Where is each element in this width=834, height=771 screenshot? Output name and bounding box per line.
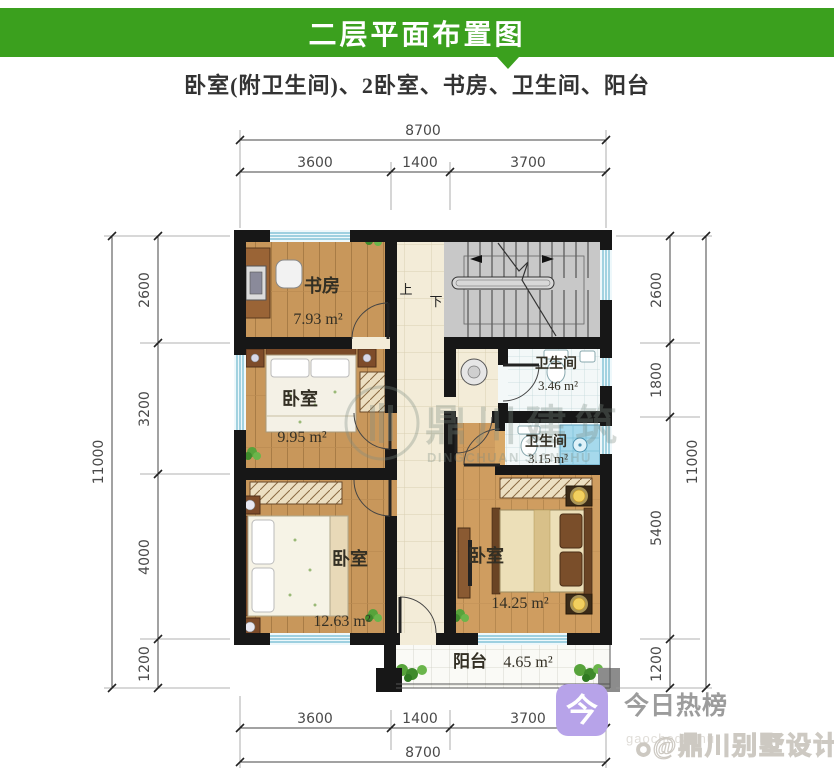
room-label-bedroom-left: 卧室 bbox=[332, 548, 368, 569]
dim-bottom-seg-3: 3700 bbox=[510, 711, 546, 727]
dim-left-seg-2: 3200 bbox=[137, 391, 153, 427]
room-area-balcony: 4.65 m² bbox=[503, 654, 552, 671]
bedroom-left-wardrobe bbox=[250, 482, 342, 504]
window-bedroom-mid bbox=[234, 355, 246, 430]
author-watermark-text: @鼎川别墅设计 bbox=[653, 733, 834, 760]
dim-left-seg-4: 1200 bbox=[137, 646, 153, 682]
dim-left-overall: 11000 bbox=[91, 440, 107, 485]
room-area-bedroom-right: 14.25 m² bbox=[491, 595, 548, 612]
stairs-down-label: 下 bbox=[429, 294, 442, 309]
jinri-rebang-logo-icon: 今 bbox=[556, 684, 608, 736]
window-bath-top bbox=[600, 358, 612, 386]
window-bedroom-right bbox=[478, 633, 567, 645]
room-area-study: 7.93 m² bbox=[293, 311, 342, 328]
room-area-bath-top: 3.46 m² bbox=[538, 378, 578, 393]
dim-right-seg-3: 5400 bbox=[649, 510, 665, 546]
window-stairs bbox=[600, 250, 612, 300]
floor-plan: 鼎川建筑 DINGCHUAN JIANZHU 书房 7.93 m² 卧室 9.9… bbox=[0, 110, 834, 771]
dim-bottom-seg-2: 1400 bbox=[402, 711, 438, 727]
room-label-bedroom-right: 卧室 bbox=[468, 545, 504, 566]
page-title: 二层平面布置图 bbox=[308, 13, 525, 53]
room-label-bath-bottom: 卫生间 bbox=[525, 433, 567, 450]
header-bar: 二层平面布置图 bbox=[0, 8, 834, 57]
dim-right-seg-4: 1200 bbox=[649, 646, 665, 682]
washbasin bbox=[461, 359, 487, 385]
logo-char: 今 bbox=[566, 692, 598, 728]
room-area-bedroom-mid: 9.95 m² bbox=[277, 429, 326, 446]
room-label-study: 书房 bbox=[304, 275, 340, 296]
plan-subtitle: 卧室(附卫生间)、2卧室、书房、卫生间、阳台 bbox=[0, 68, 834, 100]
dim-top-seg-2: 1400 bbox=[402, 155, 438, 171]
dim-top-seg-3: 3700 bbox=[510, 155, 546, 171]
room-label-bedroom-mid: 卧室 bbox=[282, 388, 318, 409]
stairs-up-label: 上 bbox=[399, 282, 412, 297]
room-label-balcony: 阳台 bbox=[453, 651, 487, 671]
dim-left-seg-3: 4000 bbox=[137, 539, 153, 575]
room-area-bath-bottom: 3.15 m² bbox=[528, 451, 568, 466]
dim-right-overall: 11000 bbox=[685, 440, 701, 485]
room-label-bath-top: 卫生间 bbox=[535, 355, 577, 372]
window-study bbox=[270, 230, 350, 242]
dim-bottom-overall: 8700 bbox=[405, 745, 441, 761]
dim-right-seg-2: 1800 bbox=[649, 362, 665, 398]
dim-bottom-seg-1: 3600 bbox=[297, 711, 333, 727]
dim-left-seg-1: 2600 bbox=[137, 272, 153, 308]
paw-icon: ◉ bbox=[636, 739, 653, 758]
page: 二层平面布置图 卧室(附卫生间)、2卧室、书房、卫生间、阳台 bbox=[0, 0, 834, 771]
dim-top-seg-1: 3600 bbox=[297, 155, 333, 171]
room-area-bedroom-left: 12.63 m² bbox=[313, 613, 370, 630]
balcony-floor bbox=[390, 639, 610, 688]
window-bedroom-left bbox=[270, 633, 350, 645]
dim-right-seg-1: 2600 bbox=[649, 272, 665, 308]
brand-name: 今日热榜 bbox=[624, 686, 728, 722]
dim-top-overall: 8700 bbox=[405, 123, 441, 139]
author-watermark: ◉@鼎川别墅设计 bbox=[636, 726, 834, 762]
